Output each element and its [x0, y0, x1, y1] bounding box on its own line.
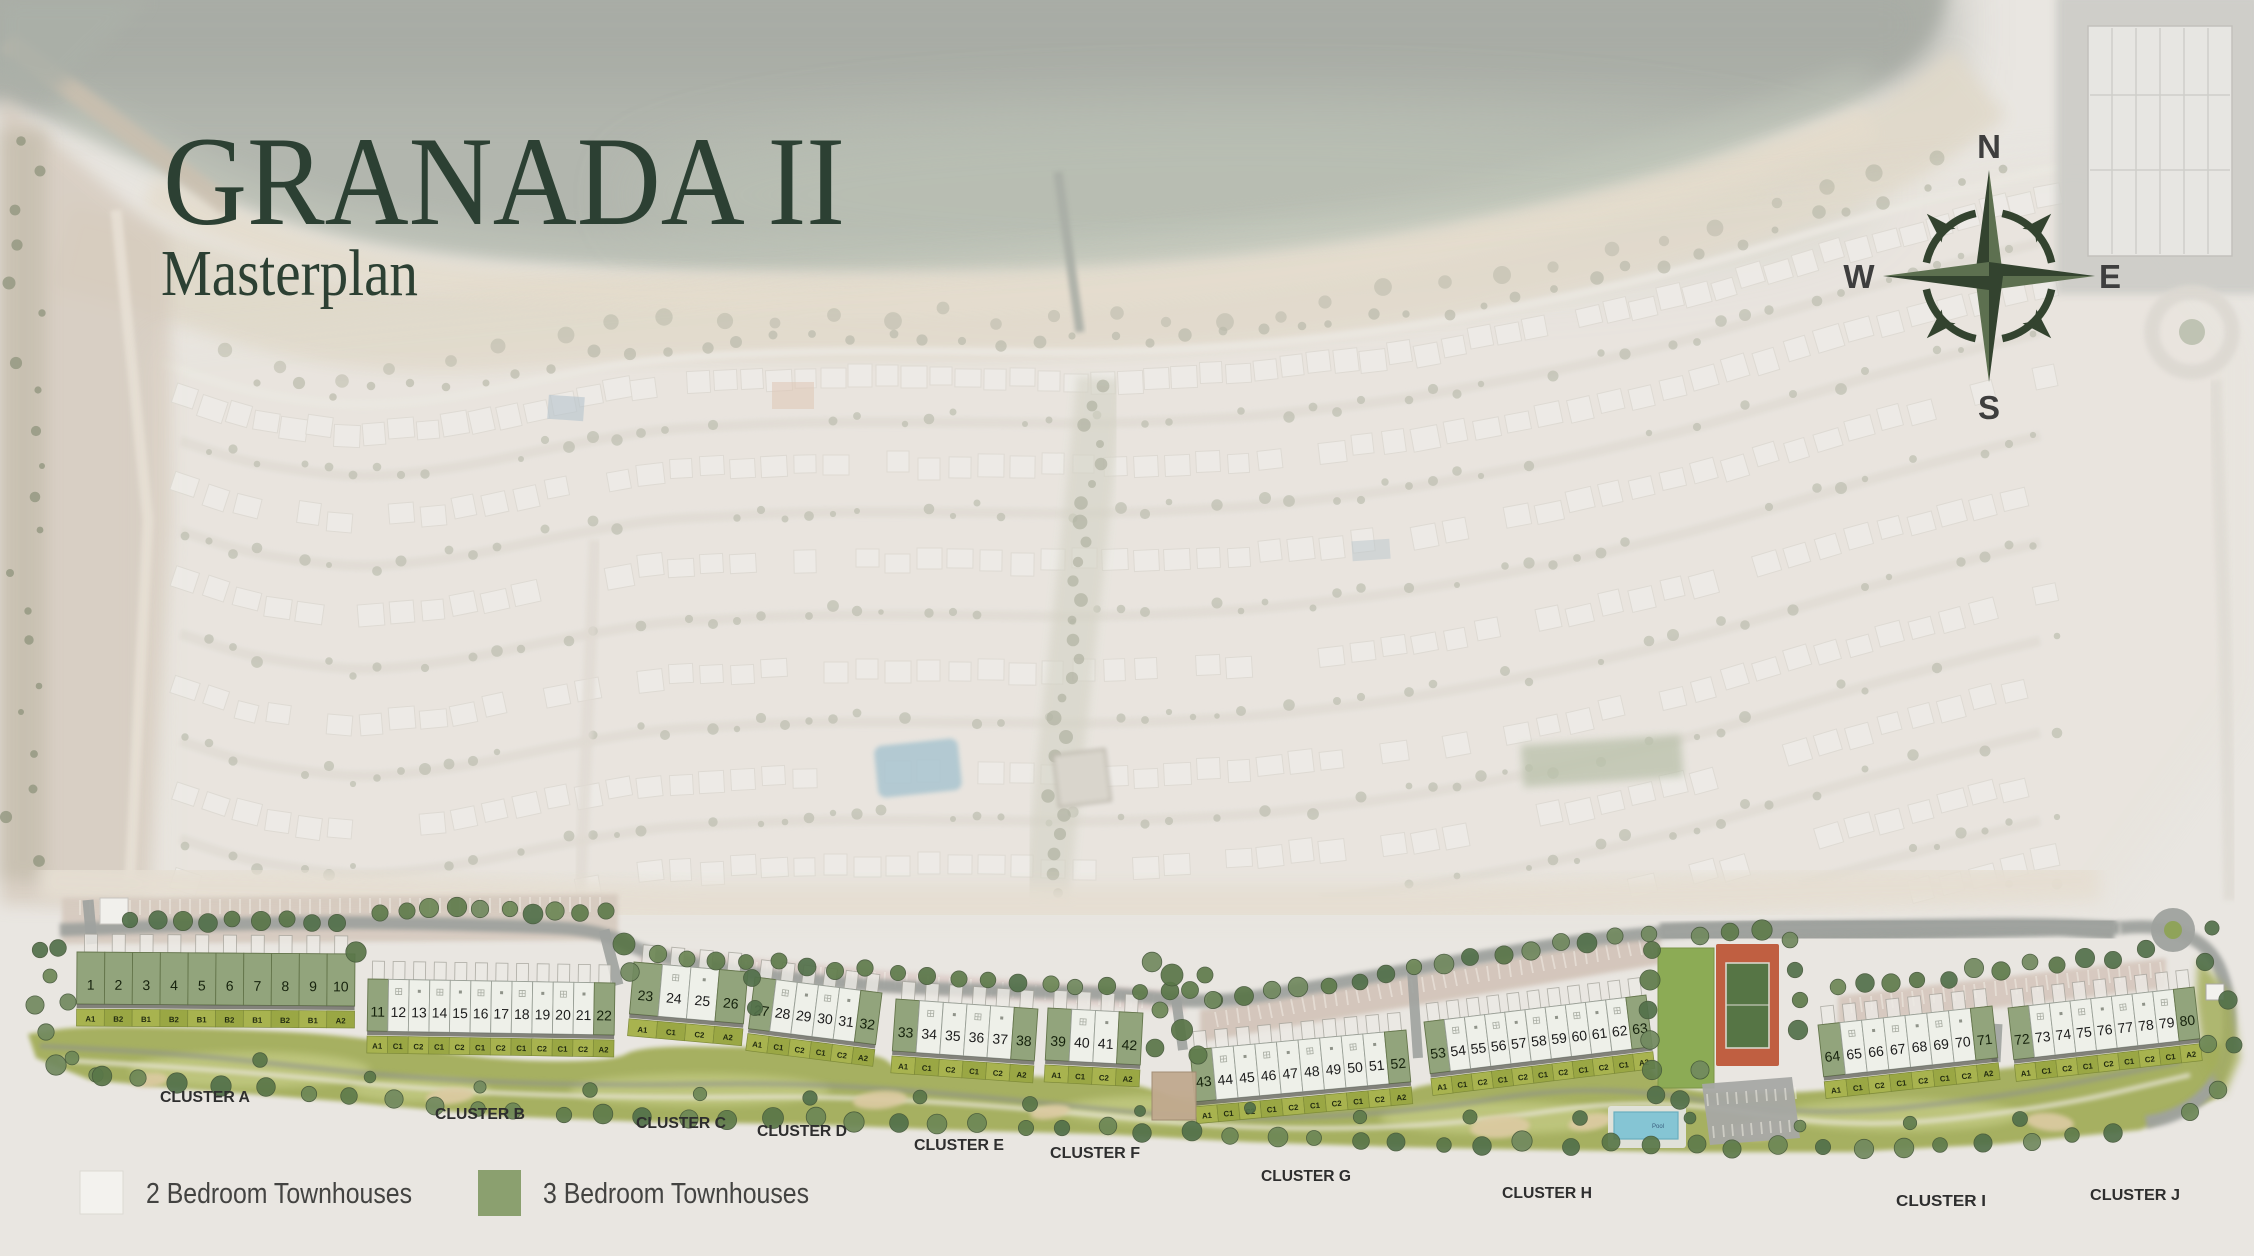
svg-text:A1: A1 [372, 1042, 383, 1051]
svg-text:C2: C2 [836, 1050, 848, 1060]
svg-text:C2: C2 [1961, 1071, 1973, 1081]
svg-text:A2: A2 [1983, 1069, 1995, 1079]
svg-text:5: 5 [198, 977, 206, 993]
svg-text:58: 58 [1530, 1032, 1548, 1050]
svg-text:45: 45 [1238, 1069, 1255, 1086]
svg-text:24: 24 [665, 989, 682, 1006]
svg-text:51: 51 [1368, 1057, 1385, 1074]
svg-text:C2: C2 [794, 1045, 806, 1055]
svg-text:B2: B2 [224, 1016, 235, 1025]
svg-text:69: 69 [1933, 1035, 1950, 1053]
svg-text:A1: A1 [898, 1062, 909, 1072]
svg-text:CLUSTER H: CLUSTER H [1502, 1185, 1592, 1202]
svg-text:9: 9 [309, 978, 317, 994]
svg-text:B1: B1 [252, 1016, 263, 1025]
svg-text:B1: B1 [308, 1016, 319, 1025]
svg-text:50: 50 [1347, 1059, 1364, 1076]
svg-text:33: 33 [897, 1024, 914, 1041]
svg-text:13: 13 [411, 1004, 427, 1020]
svg-text:2 Bedroom Townhouses: 2 Bedroom Townhouses [146, 1178, 412, 1210]
svg-text:A1: A1 [85, 1015, 96, 1024]
svg-text:C1: C1 [1538, 1070, 1550, 1080]
svg-text:C2: C2 [1517, 1072, 1529, 1082]
svg-text:38: 38 [1016, 1032, 1033, 1049]
svg-text:C2: C2 [1558, 1067, 1570, 1077]
svg-text:C1: C1 [1075, 1072, 1086, 1082]
svg-text:C2: C2 [694, 1030, 705, 1040]
svg-text:C2: C2 [1288, 1103, 1299, 1113]
svg-text:C1: C1 [1310, 1101, 1321, 1111]
svg-text:25: 25 [694, 992, 711, 1009]
svg-text:A1: A1 [1202, 1111, 1213, 1121]
svg-text:C2: C2 [413, 1042, 424, 1051]
svg-text:39: 39 [1050, 1033, 1067, 1050]
svg-text:32: 32 [859, 1015, 877, 1033]
svg-text:74: 74 [2055, 1026, 2072, 1044]
svg-text:76: 76 [2096, 1021, 2113, 1039]
svg-text:26: 26 [722, 994, 739, 1011]
svg-text:S: S [1978, 389, 2000, 426]
svg-text:C1: C1 [1852, 1083, 1864, 1093]
svg-text:B2: B2 [280, 1016, 291, 1025]
svg-text:C1: C1 [1223, 1109, 1234, 1119]
svg-text:C2: C2 [2103, 1059, 2115, 1069]
svg-text:35: 35 [945, 1027, 962, 1044]
svg-text:C1: C1 [1457, 1080, 1469, 1090]
svg-text:22: 22 [596, 1007, 612, 1023]
svg-text:52: 52 [1390, 1055, 1407, 1072]
svg-text:C1: C1 [1939, 1073, 1951, 1083]
svg-text:65: 65 [1846, 1045, 1863, 1063]
svg-text:59: 59 [1550, 1029, 1568, 1047]
svg-text:18: 18 [514, 1006, 530, 1022]
svg-text:17: 17 [493, 1006, 509, 1022]
svg-text:77: 77 [2117, 1019, 2134, 1037]
svg-text:31: 31 [837, 1012, 855, 1030]
svg-text:11: 11 [370, 1004, 385, 1020]
svg-text:GRANADA II: GRANADA II [163, 112, 845, 252]
svg-text:6: 6 [226, 978, 234, 994]
svg-text:C1: C1 [516, 1044, 527, 1053]
svg-text:CLUSTER J: CLUSTER J [2090, 1187, 2180, 1204]
svg-text:66: 66 [1867, 1043, 1884, 1061]
svg-text:60: 60 [1571, 1027, 1589, 1045]
svg-text:CLUSTER B: CLUSTER B [435, 1106, 525, 1123]
svg-text:79: 79 [2158, 1014, 2175, 1032]
svg-text:C1: C1 [2165, 1052, 2177, 1062]
svg-text:A2: A2 [1396, 1093, 1407, 1103]
svg-text:C1: C1 [922, 1063, 933, 1073]
svg-text:C1: C1 [1497, 1075, 1509, 1085]
svg-text:C1: C1 [666, 1028, 677, 1038]
svg-text:15: 15 [452, 1005, 468, 1021]
svg-text:C1: C1 [1266, 1105, 1277, 1115]
svg-text:CLUSTER D: CLUSTER D [757, 1123, 847, 1140]
svg-text:C2: C2 [2144, 1054, 2156, 1064]
svg-text:A1: A1 [1051, 1071, 1062, 1081]
svg-text:C1: C1 [1618, 1060, 1630, 1070]
svg-text:67: 67 [1889, 1040, 1906, 1058]
svg-text:C2: C2 [1598, 1063, 1610, 1073]
svg-text:21: 21 [576, 1007, 592, 1023]
svg-text:C1: C1 [393, 1042, 404, 1051]
svg-text:7: 7 [254, 978, 262, 994]
svg-text:C1: C1 [815, 1048, 827, 1058]
svg-text:42: 42 [1121, 1036, 1138, 1053]
svg-text:CLUSTER I: CLUSTER I [1896, 1193, 1986, 1210]
svg-text:C2: C2 [1874, 1081, 1886, 1091]
svg-text:C2: C2 [1331, 1099, 1342, 1109]
svg-text:14: 14 [432, 1005, 448, 1021]
svg-text:55: 55 [1470, 1039, 1488, 1057]
svg-text:71: 71 [1976, 1031, 1993, 1049]
svg-text:A1: A1 [1437, 1082, 1449, 1092]
svg-text:C1: C1 [1353, 1097, 1364, 1107]
svg-text:29: 29 [795, 1007, 813, 1025]
svg-text:57: 57 [1510, 1034, 1528, 1052]
svg-text:3 Bedroom Townhouses: 3 Bedroom Townhouses [543, 1178, 809, 1210]
svg-text:2: 2 [115, 977, 123, 993]
svg-text:10: 10 [333, 978, 349, 994]
svg-text:C2: C2 [1918, 1076, 1930, 1086]
svg-text:47: 47 [1282, 1065, 1299, 1082]
svg-text:4: 4 [170, 977, 178, 993]
svg-text:73: 73 [2034, 1028, 2051, 1046]
svg-text:A1: A1 [752, 1040, 764, 1050]
svg-text:80: 80 [2179, 1012, 2196, 1030]
svg-text:41: 41 [1098, 1035, 1115, 1052]
svg-text:A2: A2 [1016, 1070, 1027, 1080]
svg-text:56: 56 [1490, 1037, 1508, 1055]
svg-text:B2: B2 [113, 1015, 124, 1024]
svg-text:C2: C2 [1477, 1077, 1489, 1087]
svg-text:CLUSTER F: CLUSTER F [1050, 1145, 1140, 1162]
svg-text:C1: C1 [1578, 1065, 1590, 1075]
svg-text:C1: C1 [2124, 1057, 2136, 1067]
svg-text:62: 62 [1611, 1022, 1629, 1040]
svg-text:78: 78 [2137, 1016, 2154, 1034]
svg-text:23: 23 [637, 987, 654, 1004]
svg-text:16: 16 [473, 1005, 489, 1021]
svg-text:A2: A2 [723, 1033, 734, 1043]
svg-text:W: W [1843, 258, 1875, 295]
svg-text:B1: B1 [141, 1015, 152, 1024]
svg-text:34: 34 [921, 1025, 938, 1042]
svg-text:28: 28 [774, 1004, 792, 1022]
svg-text:20: 20 [555, 1007, 571, 1023]
svg-text:A2: A2 [599, 1045, 610, 1054]
svg-text:40: 40 [1074, 1034, 1091, 1051]
svg-text:A2: A2 [857, 1053, 869, 1063]
svg-text:C2: C2 [496, 1044, 507, 1053]
svg-text:70: 70 [1954, 1033, 1971, 1051]
svg-text:A2: A2 [336, 1016, 347, 1025]
svg-text:C1: C1 [475, 1043, 486, 1052]
svg-text:C1: C1 [557, 1045, 568, 1054]
svg-text:75: 75 [2075, 1023, 2092, 1041]
svg-text:C2: C2 [945, 1065, 956, 1075]
svg-text:A2: A2 [2186, 1050, 2198, 1060]
svg-text:CLUSTER A: CLUSTER A [160, 1089, 250, 1106]
svg-text:46: 46 [1260, 1067, 1277, 1084]
svg-text:30: 30 [816, 1010, 834, 1028]
svg-text:C2: C2 [578, 1045, 589, 1054]
svg-text:12: 12 [390, 1004, 406, 1020]
svg-text:48: 48 [1303, 1063, 1320, 1080]
svg-text:1: 1 [87, 977, 95, 993]
svg-text:C1: C1 [2041, 1066, 2053, 1076]
svg-text:A1: A1 [1831, 1085, 1843, 1095]
svg-text:54: 54 [1450, 1042, 1468, 1060]
svg-text:49: 49 [1325, 1061, 1342, 1078]
svg-text:64: 64 [1824, 1047, 1841, 1065]
svg-text:B1: B1 [197, 1015, 208, 1024]
svg-text:CLUSTER C: CLUSTER C [636, 1115, 726, 1132]
svg-text:C2: C2 [1099, 1073, 1110, 1083]
svg-text:Pool: Pool [1652, 1124, 1664, 1130]
svg-text:CLUSTER G: CLUSTER G [1261, 1168, 1351, 1185]
svg-text:C2: C2 [1374, 1095, 1385, 1105]
svg-text:19: 19 [535, 1006, 551, 1022]
svg-text:44: 44 [1217, 1071, 1234, 1088]
svg-text:CLUSTER E: CLUSTER E [914, 1137, 1004, 1154]
svg-text:B2: B2 [169, 1015, 180, 1024]
svg-text:C1: C1 [434, 1043, 445, 1052]
svg-text:43: 43 [1195, 1073, 1212, 1090]
svg-text:36: 36 [968, 1029, 985, 1046]
svg-text:C2: C2 [537, 1044, 548, 1053]
svg-text:C2: C2 [454, 1043, 465, 1052]
svg-text:C1: C1 [969, 1067, 980, 1077]
svg-text:C1: C1 [773, 1042, 785, 1052]
svg-text:E: E [2099, 258, 2121, 295]
svg-text:Masterplan: Masterplan [161, 237, 418, 310]
svg-text:53: 53 [1429, 1044, 1447, 1062]
svg-text:72: 72 [2013, 1030, 2030, 1048]
svg-text:A2: A2 [1122, 1075, 1133, 1085]
svg-text:N: N [1977, 128, 2001, 165]
svg-text:3: 3 [142, 977, 150, 993]
svg-text:37: 37 [992, 1030, 1009, 1047]
svg-text:61: 61 [1591, 1025, 1609, 1043]
svg-text:A1: A1 [637, 1025, 648, 1035]
svg-text:68: 68 [1911, 1038, 1928, 1056]
svg-text:A1: A1 [2020, 1068, 2032, 1078]
svg-text:C1: C1 [2082, 1061, 2094, 1071]
svg-text:C1: C1 [1896, 1078, 1908, 1088]
svg-text:8: 8 [281, 978, 289, 994]
svg-text:C2: C2 [2062, 1064, 2074, 1074]
svg-text:C2: C2 [993, 1069, 1004, 1079]
